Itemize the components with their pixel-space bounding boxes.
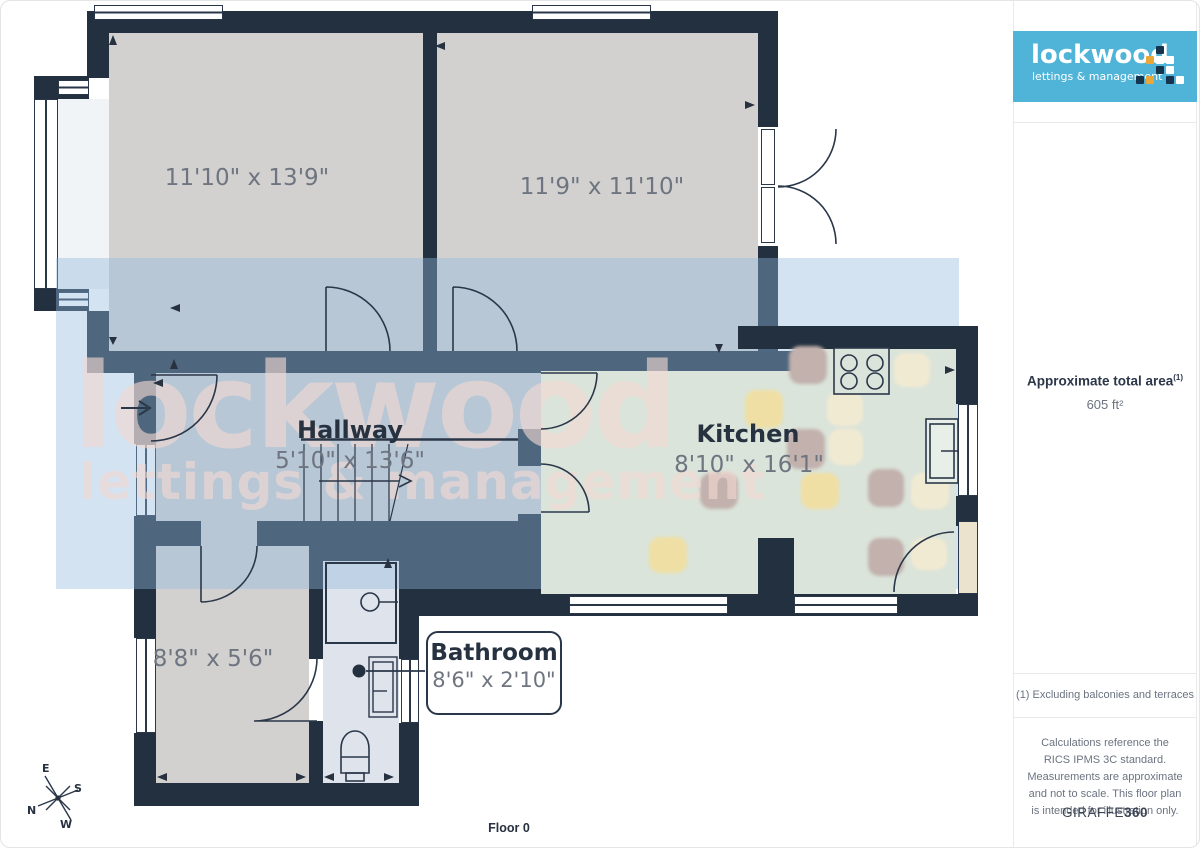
room-a-door-arc [326, 287, 390, 351]
shower [326, 563, 398, 643]
sidebar [1013, 1, 1197, 848]
compass-s-label: S [74, 782, 82, 795]
room-c-dims: 8'8" x 5'6" [153, 646, 274, 672]
logo-wordmark: lockwood [1031, 42, 1169, 68]
total-area-value: 605 ft² [1013, 397, 1197, 412]
compass-n-label: N [27, 804, 36, 817]
brand-suffix: 360 [1124, 805, 1148, 820]
bathroom-sink [369, 657, 397, 717]
kitchen-dims: 8'10" x 16'1" [674, 452, 824, 478]
understairs-door-arc [541, 464, 589, 512]
bathroom-callout-name: Bathroom [428, 640, 560, 666]
toilet [341, 731, 369, 781]
room-c-door-arc [201, 546, 257, 602]
room-b-door-arc [453, 287, 517, 351]
sidebar-border-left [1013, 1, 1014, 848]
kitchen-sink [926, 419, 958, 483]
plan-linework [1, 1, 986, 848]
total-area-block: Approximate total area(1) 605 ft² [1013, 373, 1197, 412]
hallway-label: Hallway [297, 416, 403, 444]
sidebar-divider-1 [1013, 122, 1197, 123]
floorplan-canvas: lockwood lettings & management [1, 1, 986, 848]
compass-e-label: E [42, 762, 50, 775]
brand-name: GIRAFFE [1062, 805, 1124, 820]
lockwood-logo: lockwood lettings & management [1013, 31, 1197, 102]
room-a-dims: 11'10" x 13'9" [165, 165, 329, 191]
hallway-dims: 5'10" x 13'6" [275, 448, 425, 474]
total-area-label: Approximate total area(1) [1013, 373, 1197, 389]
compass-w-label: W [60, 818, 72, 831]
floorplan-page: lockwood lettings & management [0, 0, 1200, 848]
french-doors-arcs [778, 129, 836, 244]
kitchen-label: Kitchen [697, 420, 800, 448]
stove [834, 348, 889, 394]
bathroom-callout-dims: 8'6" x 2'10" [428, 668, 560, 692]
giraffe360-brand: GIRAFFE360 [1013, 805, 1197, 820]
floor-label: Floor 0 [488, 821, 530, 835]
room-b-dims: 11'9" x 11'10" [520, 174, 684, 200]
total-area-footnote-ref: (1) [1173, 373, 1183, 382]
sidebar-border-right [1196, 1, 1197, 848]
entry-arrow [121, 401, 150, 415]
sidebar-divider-3 [1013, 717, 1197, 718]
kitchen-rear-door-arc [894, 532, 954, 592]
bathroom-callout: Bathroom 8'6" x 2'10" [426, 631, 562, 715]
compass-rose [38, 776, 78, 820]
bathroom-callout-leader [353, 665, 426, 678]
area-footnote: (1) Excluding balconies and terraces [1013, 673, 1197, 717]
kitchen-door-arc [541, 373, 597, 429]
